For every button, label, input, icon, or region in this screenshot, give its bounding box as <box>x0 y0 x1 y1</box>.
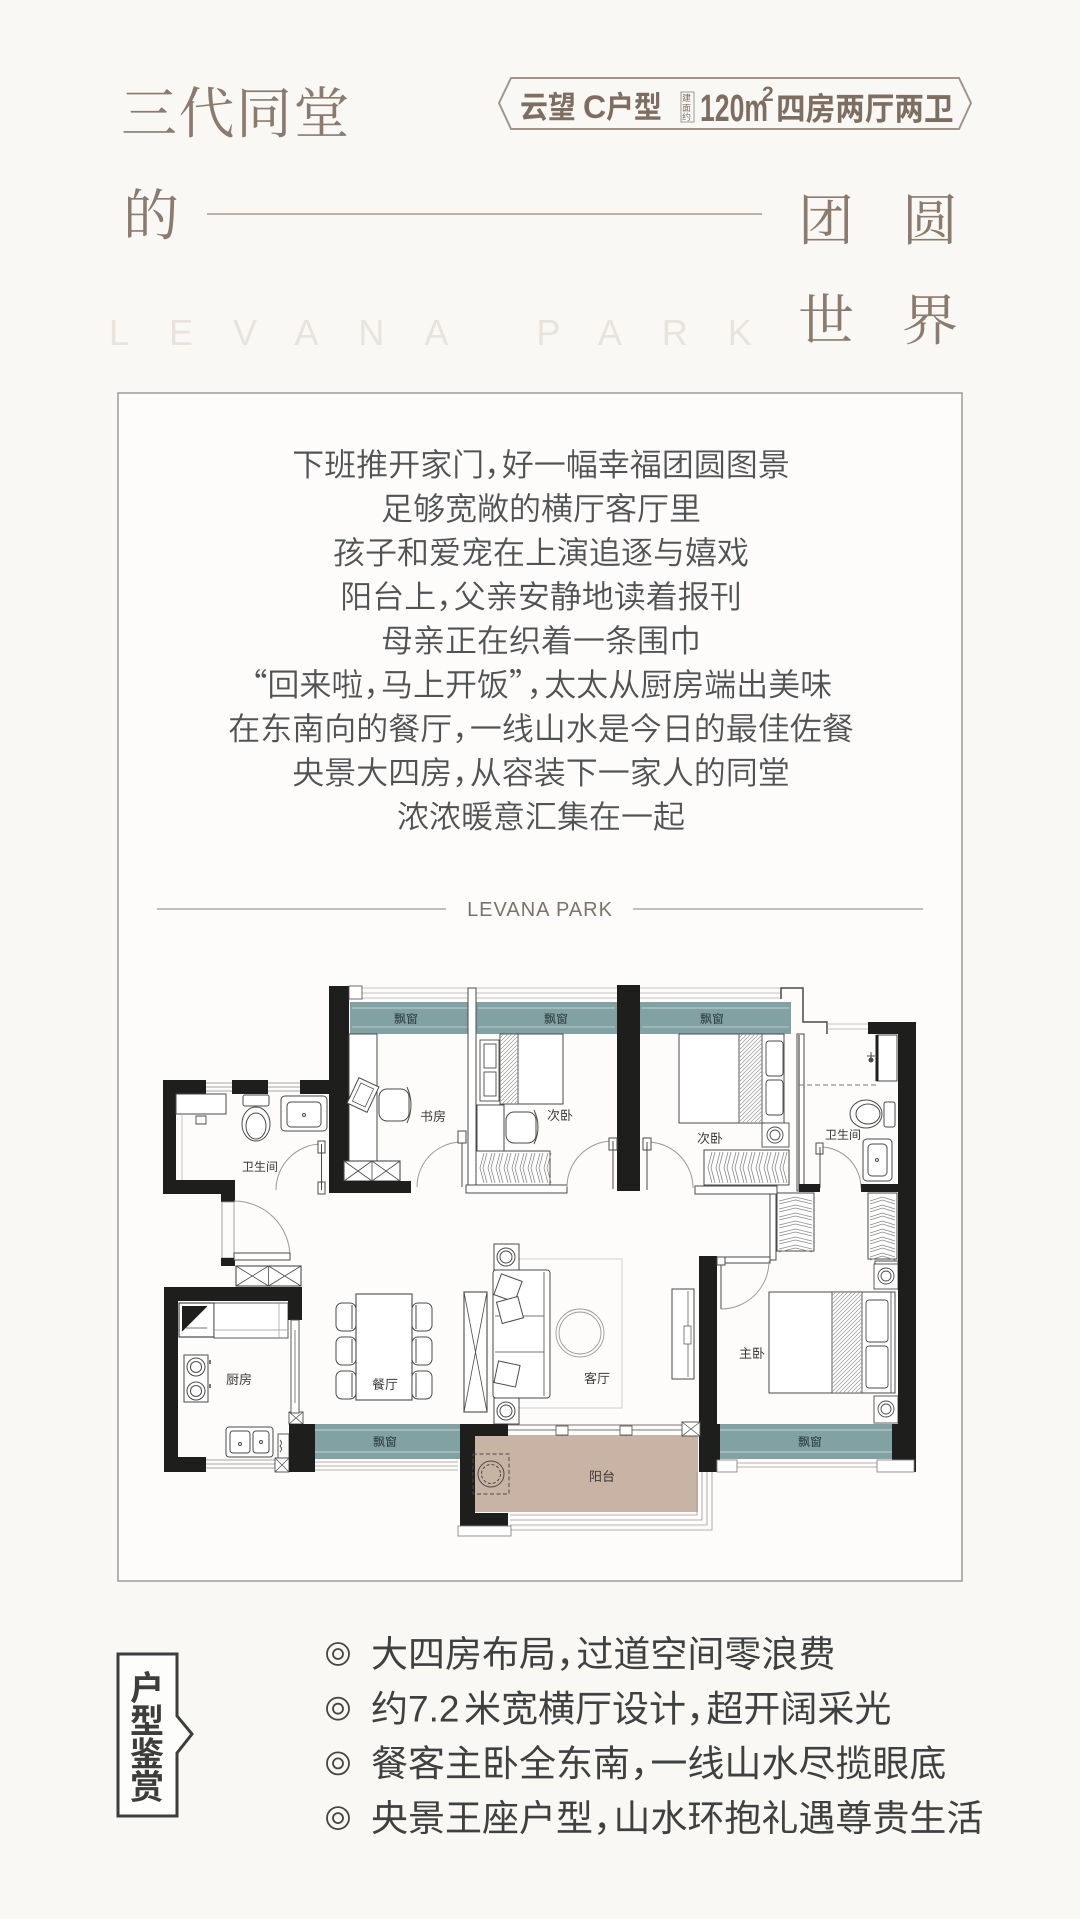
svg-text:LEVANA PARK: LEVANA PARK <box>467 899 613 921</box>
svg-text:7.2: 7.2 <box>408 1689 459 1730</box>
svg-text:2: 2 <box>762 83 774 106</box>
svg-text:C: C <box>583 89 606 125</box>
svg-text:LEVANA PARK: LEVANA PARK <box>109 312 792 353</box>
svg-text:120m: 120m <box>700 88 768 130</box>
